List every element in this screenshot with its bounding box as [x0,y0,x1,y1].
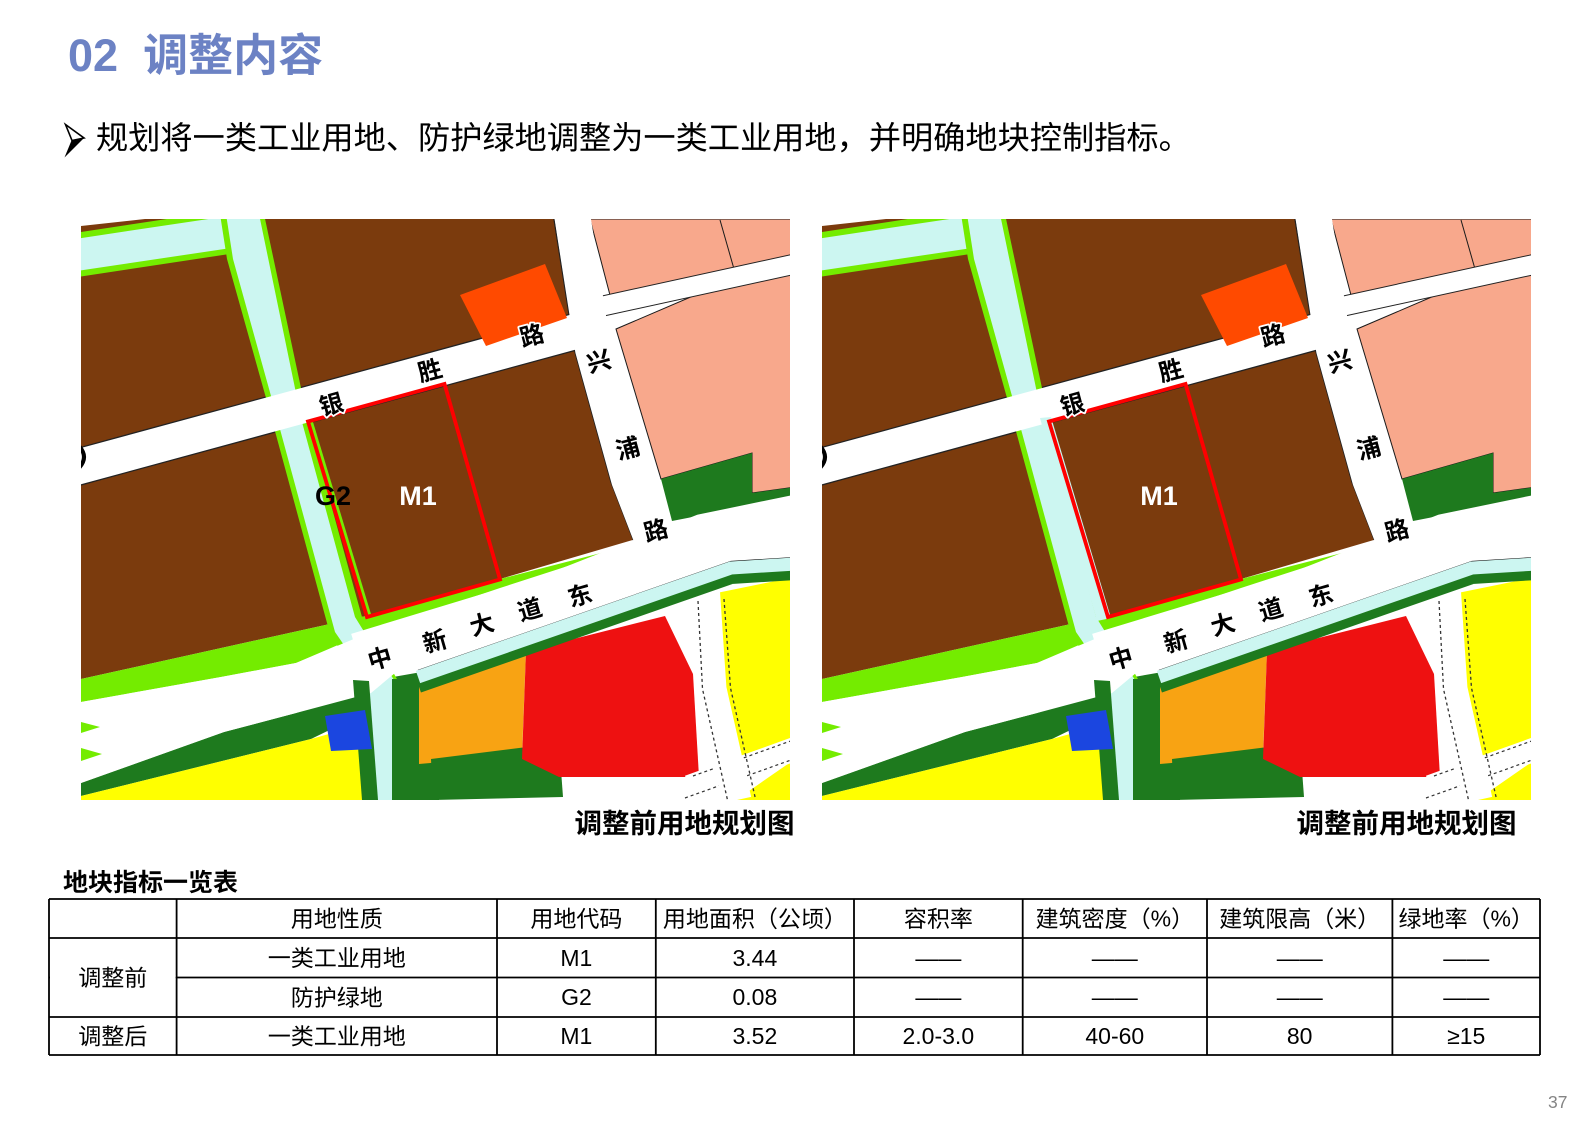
svg-text:M1: M1 [560,945,592,971]
svg-text:——: —— [1277,984,1323,1010]
svg-text:——: —— [1443,945,1489,971]
svg-text:3.44: 3.44 [733,945,778,971]
svg-text:0.08: 0.08 [733,984,778,1010]
svg-text:M1: M1 [1140,481,1178,511]
svg-text:%: % [1491,906,1511,932]
svg-text:——: —— [1092,984,1138,1010]
svg-text:80: 80 [1287,1023,1313,1049]
svg-text:37: 37 [1548,1092,1567,1112]
svg-text:G2: G2 [561,984,592,1010]
svg-text:3.52: 3.52 [733,1023,778,1049]
svg-text:G2: G2 [315,481,351,511]
svg-text:40-60: 40-60 [1085,1023,1144,1049]
svg-text:2.0-3.0: 2.0-3.0 [903,1023,975,1049]
svg-text:——: —— [1443,984,1489,1010]
svg-text:%: % [1151,906,1171,932]
svg-text:——: —— [1277,945,1323,971]
svg-text:——: —— [1092,945,1138,971]
svg-text:M1: M1 [399,481,437,511]
svg-text:M1: M1 [560,1023,592,1049]
svg-text:——: —— [915,984,961,1010]
svg-text:02: 02 [68,30,118,81]
svg-text:——: —— [915,945,961,971]
svg-text:≥15: ≥15 [1447,1023,1485,1049]
